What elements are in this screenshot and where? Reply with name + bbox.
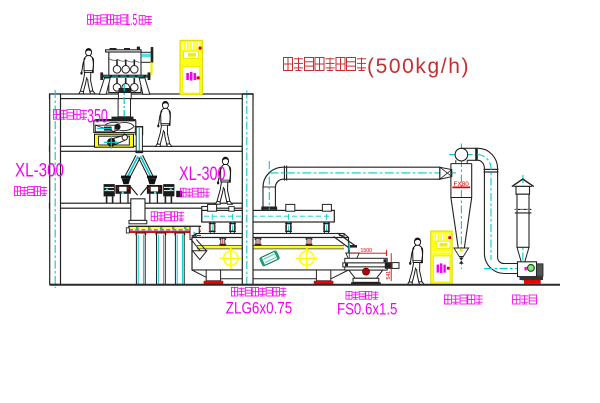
svg-text:1.5: 1.5 [126,11,138,28]
svg-text:XL-300: XL-300 [179,162,226,185]
svg-text:541: 541 [386,271,392,280]
svg-text:350: 350 [87,106,108,127]
svg-text:XL-300: XL-300 [15,159,64,181]
svg-text:ZLG6x0.75: ZLG6x0.75 [226,299,292,318]
svg-text:FS0.6x1.5: FS0.6x1.5 [337,300,397,319]
svg-text:(500kg/h): (500kg/h) [367,55,470,78]
svg-text:1500: 1500 [361,248,373,254]
